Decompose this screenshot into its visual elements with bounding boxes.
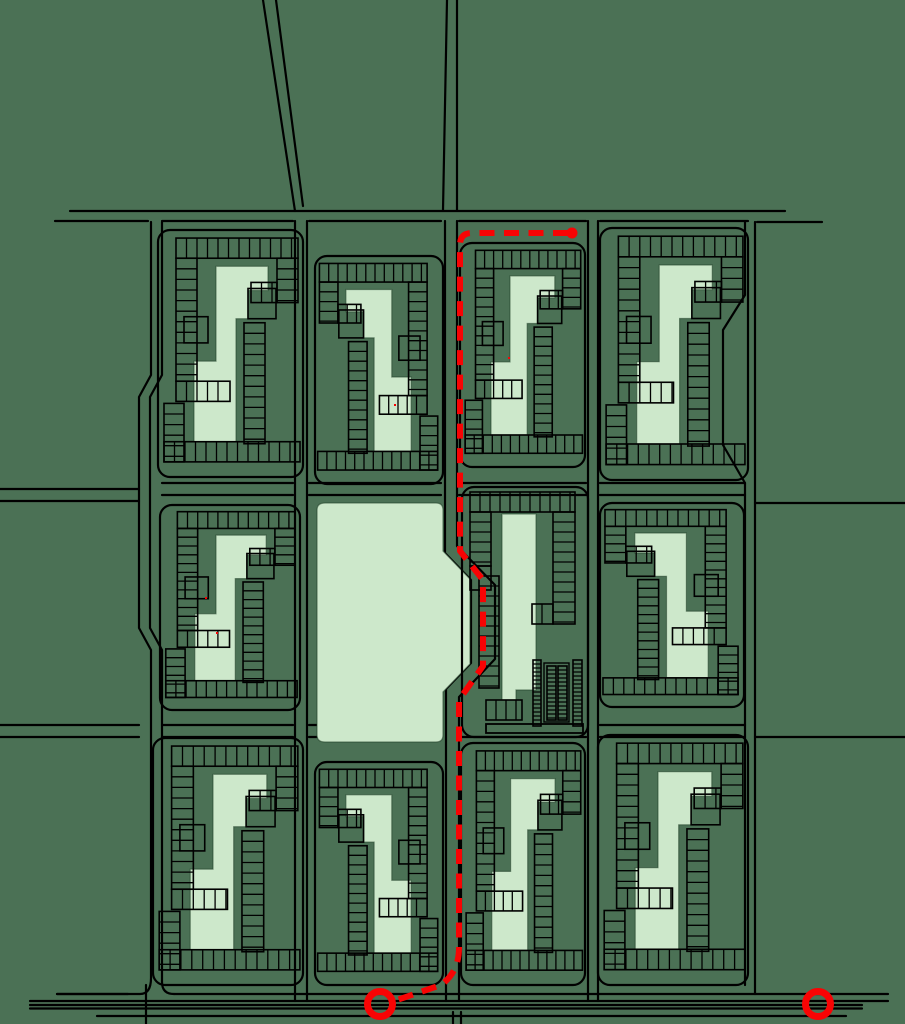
site-plan-map xyxy=(0,0,905,1024)
stray-red-mark xyxy=(508,357,510,359)
site-plan-page xyxy=(0,0,905,1024)
route-destination-dot xyxy=(567,228,578,239)
stray-red-mark xyxy=(394,404,396,406)
stray-red-mark xyxy=(216,632,218,634)
stray-red-mark xyxy=(205,597,207,599)
background-layer xyxy=(0,0,905,1024)
apartment-slab xyxy=(502,514,536,700)
map-background xyxy=(0,0,905,1024)
